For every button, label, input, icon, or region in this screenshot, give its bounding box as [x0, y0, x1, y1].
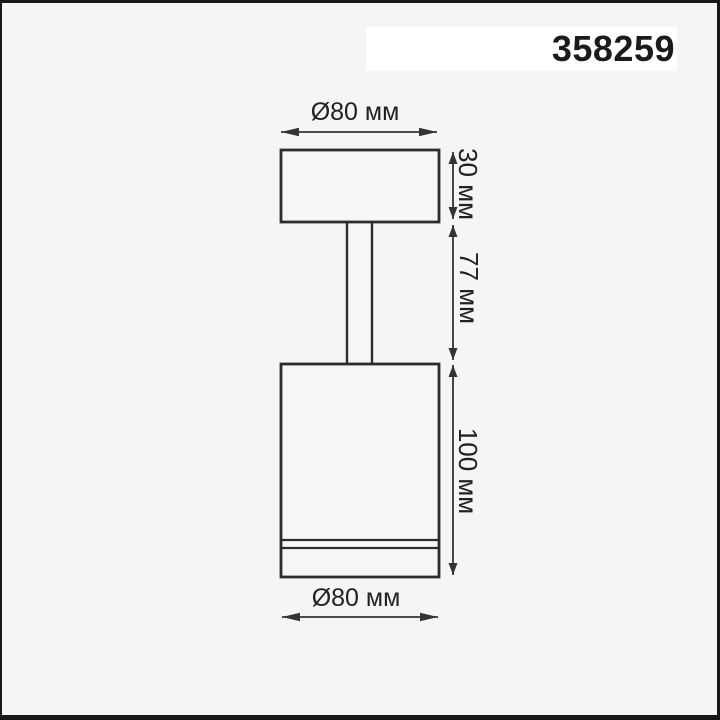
top-diameter-label: Ø80 мм	[265, 97, 445, 127]
product-dimension-diagram: 358259 Ø80 мм 30 мм 77 мм 100 мм Ø80 мм	[0, 0, 720, 720]
product-code: 358259	[552, 27, 677, 71]
stem-height-label: 77 мм	[454, 208, 484, 368]
body-height-label: 100 мм	[453, 391, 483, 551]
product-code-band: 358259	[366, 27, 677, 71]
fixture-stem	[347, 217, 372, 367]
bottom-diameter-label: Ø80 мм	[266, 583, 446, 613]
fixture-body	[281, 364, 439, 577]
fixture-cap	[281, 150, 439, 222]
